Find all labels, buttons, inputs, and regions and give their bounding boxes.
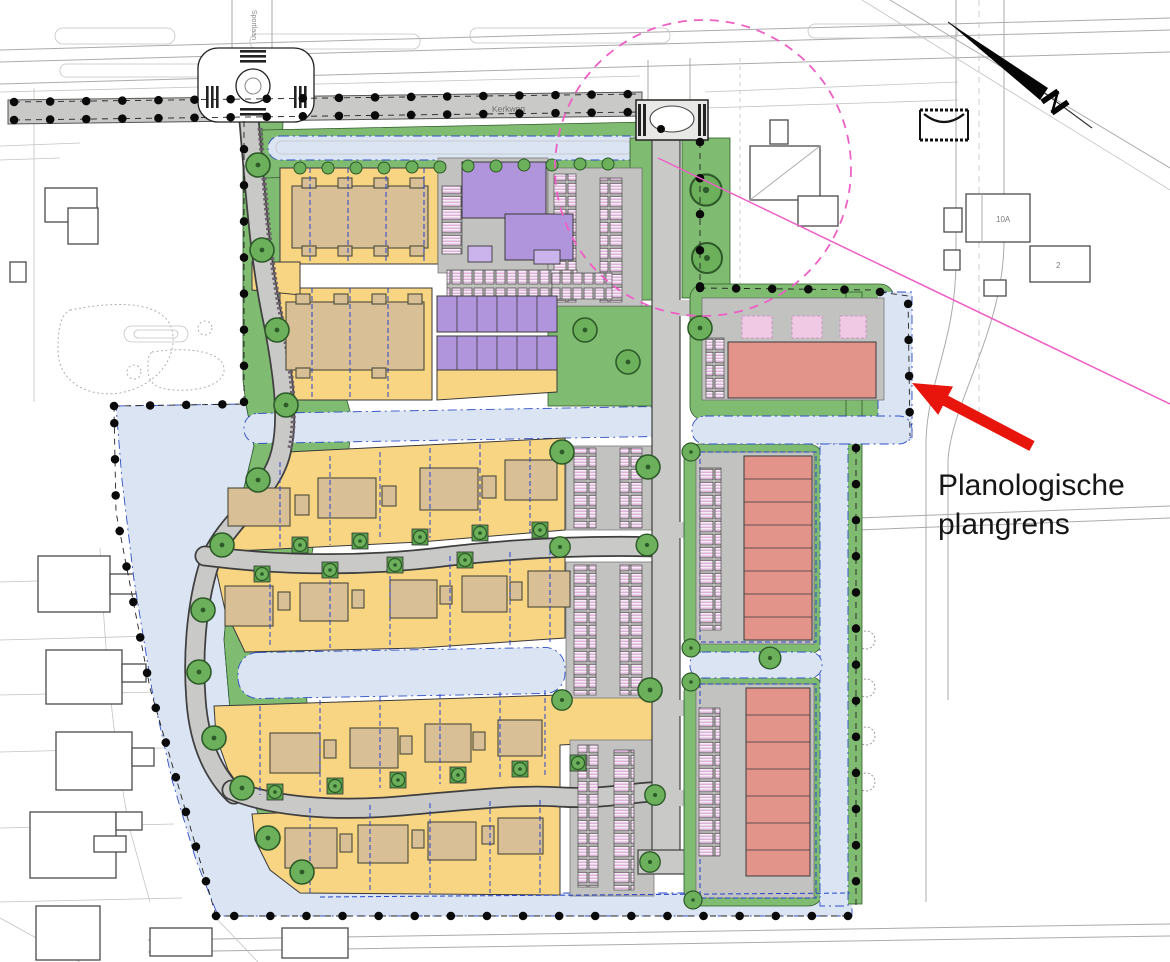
canal-south <box>238 647 566 699</box>
roundabout <box>198 48 314 122</box>
row-houses-north <box>728 342 876 398</box>
house-number-10a: 10A <box>996 215 1011 224</box>
row-houses-south <box>746 688 810 876</box>
water-north-capsule <box>268 136 642 160</box>
bridge-culvert <box>920 110 968 140</box>
water-east-band <box>820 444 848 906</box>
north-arrow <box>948 22 1092 128</box>
plan-area: Kerkweg <box>8 48 968 916</box>
annotation-line2: plangrens <box>938 508 1070 541</box>
site-plan-screenshot: Sportlaan <box>0 0 1170 962</box>
site-plan-map: Sportlaan <box>0 0 1170 962</box>
existing-farm-buildings <box>740 58 838 292</box>
canal-connector <box>690 652 822 678</box>
house-number-2: 2 <box>1056 261 1061 270</box>
annotation-line1: Planologische <box>938 469 1125 502</box>
road-label-sportlaan: Sportlaan <box>250 10 257 40</box>
existing-houses-right: 10A 2 <box>944 194 1090 296</box>
annotation-plangrens: Planologische plangrens <box>912 383 1125 541</box>
red-arrow <box>912 383 1035 451</box>
entrance-plateau <box>636 100 708 140</box>
canal-east <box>692 416 912 444</box>
